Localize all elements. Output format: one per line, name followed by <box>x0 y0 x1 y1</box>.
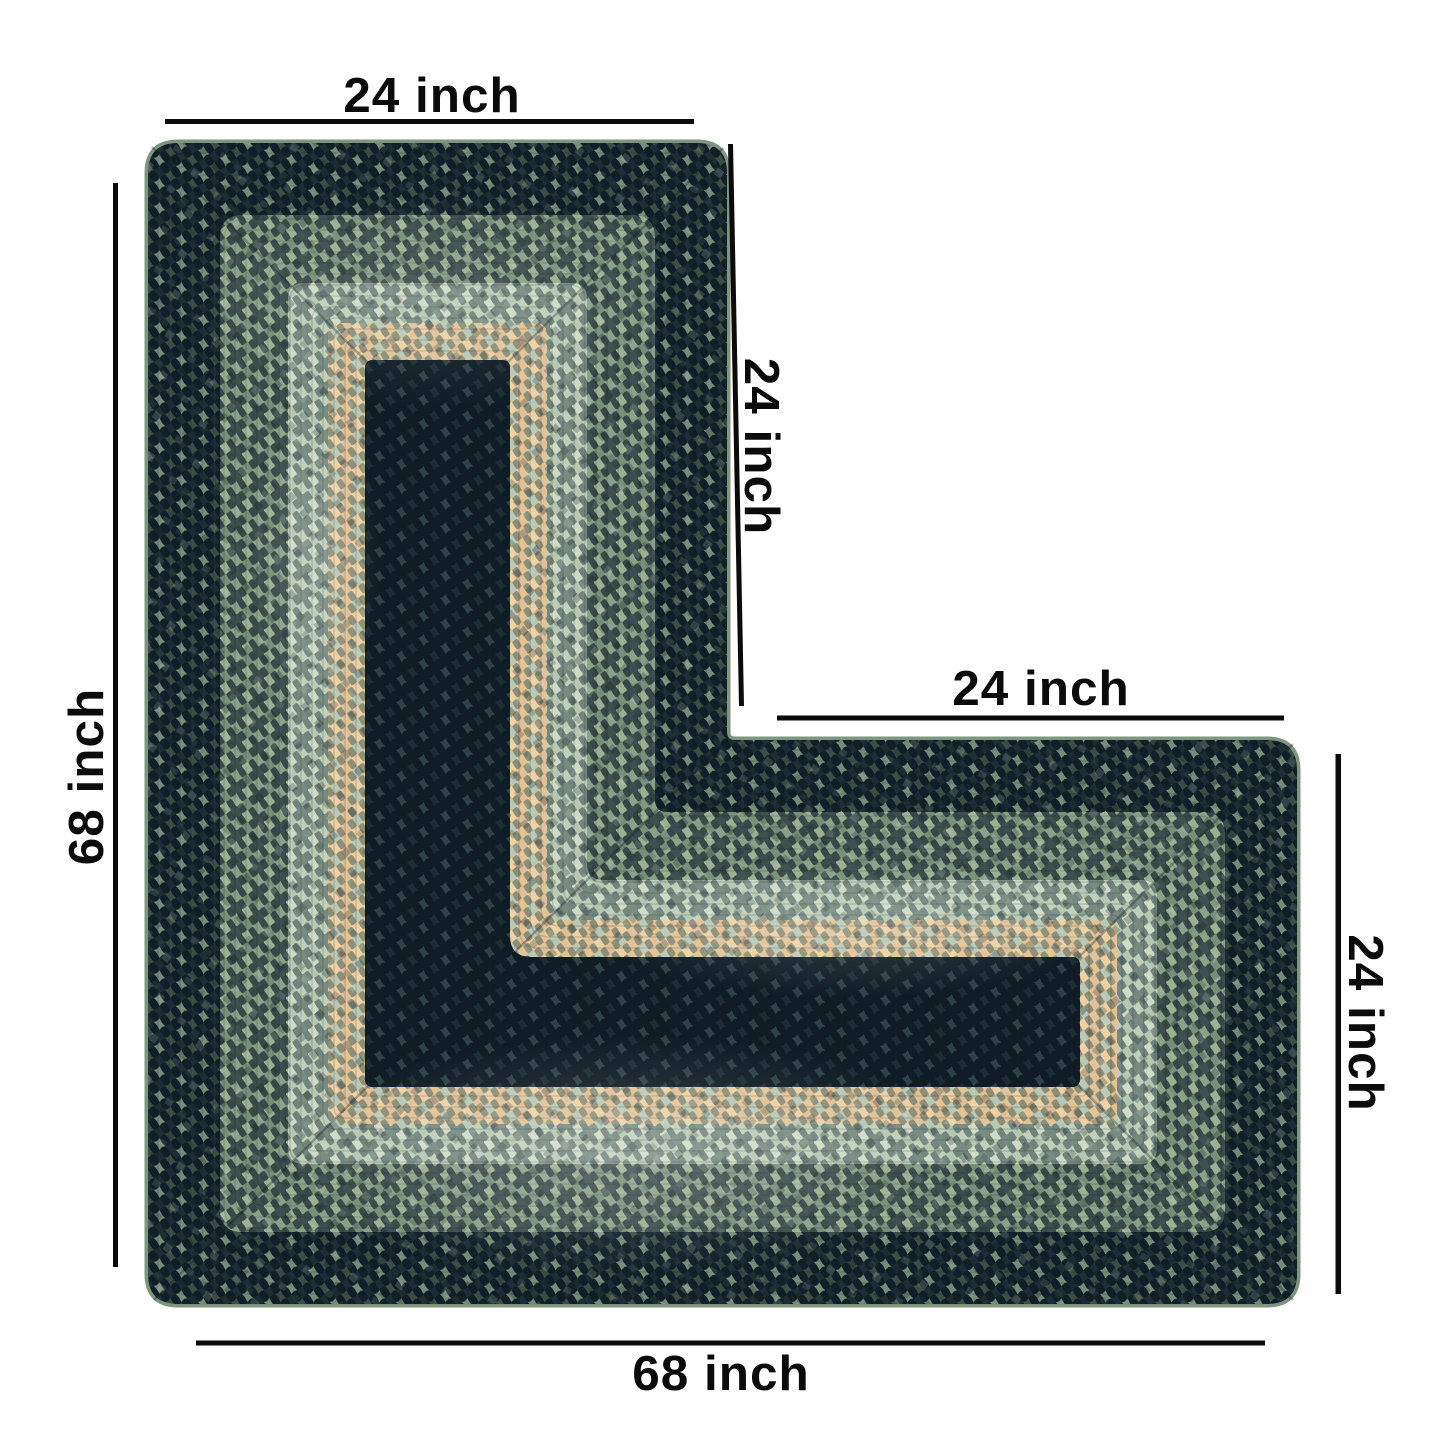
svg-text:68 inch: 68 inch <box>632 1346 810 1401</box>
svg-text:24 inch: 24 inch <box>343 68 521 123</box>
svg-text:24 inch: 24 inch <box>1338 934 1393 1112</box>
svg-text:24 inch: 24 inch <box>734 358 789 536</box>
svg-text:68 inch: 68 inch <box>59 688 114 866</box>
svg-text:24 inch: 24 inch <box>952 661 1130 716</box>
